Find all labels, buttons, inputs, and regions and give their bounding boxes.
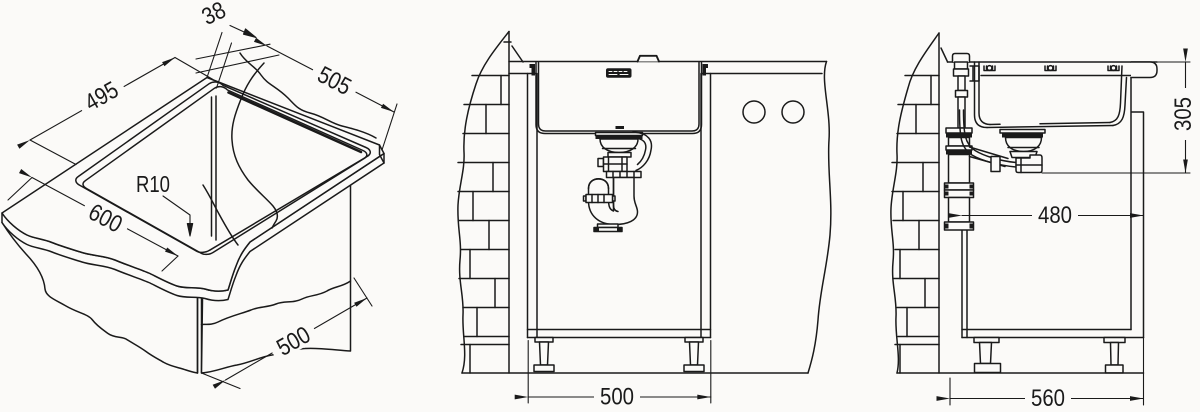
svg-text:560: 560 bbox=[1031, 385, 1065, 412]
svg-text:R10: R10 bbox=[136, 171, 170, 197]
svg-text:305: 305 bbox=[1170, 97, 1197, 131]
svg-text:500: 500 bbox=[600, 384, 634, 411]
svg-text:480: 480 bbox=[1038, 202, 1072, 229]
